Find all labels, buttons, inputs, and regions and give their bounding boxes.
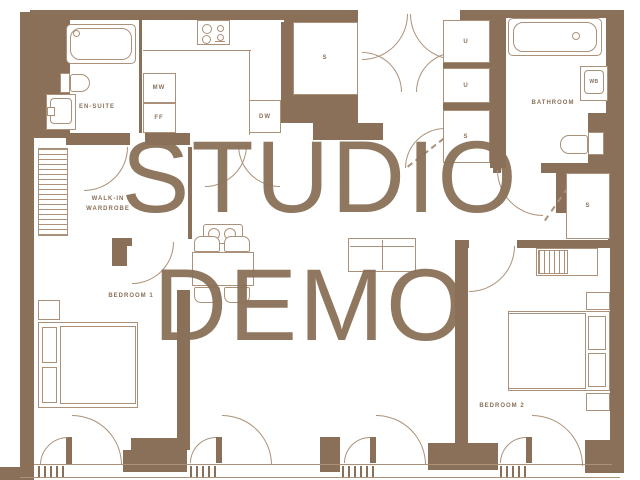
door-arc — [72, 415, 122, 465]
fixture-label-wash-basin: WB — [589, 79, 598, 85]
door-arc — [344, 437, 370, 463]
wall-segment — [606, 10, 624, 168]
wall-segment — [139, 20, 142, 133]
balcony-railing — [38, 466, 68, 477]
pillow — [42, 367, 57, 403]
mattress — [60, 326, 136, 404]
toilet — [560, 135, 588, 154]
door-arc — [500, 437, 526, 463]
balcony-railing — [342, 466, 374, 477]
pillow — [588, 316, 606, 350]
entry-door-arc — [362, 52, 402, 92]
kitchen-counter-edge — [143, 50, 251, 51]
bathtub-inner — [513, 22, 597, 52]
hob-controls — [215, 41, 225, 42]
wall-segment — [66, 10, 284, 20]
room-label-ensuite: EN-SUITE — [79, 104, 115, 110]
wall-segment — [284, 10, 358, 22]
door-arc — [190, 437, 216, 463]
door-arc — [376, 415, 426, 465]
hob-burner — [202, 35, 211, 44]
bedside-table — [38, 300, 60, 320]
floor-plan: EN-SUITE WALK-IN WARDROBE BEDROOM 1 BATH… — [0, 0, 640, 480]
mattress — [508, 313, 586, 389]
hob-burner — [202, 24, 212, 34]
door-arc — [222, 415, 272, 465]
room-label-bathroom: BATHROOM — [532, 100, 575, 106]
room-label-walk-in-1: WALK-IN — [92, 196, 125, 202]
pillow — [588, 353, 606, 387]
watermark-line-2: DEMO — [153, 254, 467, 356]
door-arc — [469, 246, 515, 292]
door-arc — [40, 437, 68, 465]
door-arc — [532, 415, 583, 466]
wall-segment — [443, 103, 490, 110]
wall-segment — [455, 240, 469, 248]
watermark-line-1: STUDIO — [121, 126, 518, 228]
washbasin-tap — [47, 107, 55, 116]
bathtub-drain — [572, 32, 580, 40]
wall-segment — [505, 10, 608, 18]
wall-segment — [428, 443, 498, 470]
hob-burner — [217, 25, 224, 32]
wardrobe-shelves — [38, 148, 68, 236]
store-label-entry: S — [322, 55, 327, 61]
wall-segment — [284, 95, 358, 123]
wall-segment — [320, 437, 340, 472]
balcony-railing — [190, 466, 220, 477]
utility-label-1: U — [463, 39, 468, 45]
balcony-edge-line — [20, 477, 620, 478]
balcony-railing — [500, 466, 530, 477]
store-label-bedroom2: S — [585, 203, 590, 209]
wall-segment — [610, 425, 624, 443]
wall-segment — [123, 450, 187, 472]
wall-segment — [131, 438, 177, 450]
wall-segment — [0, 467, 34, 480]
wardrobe-rail — [538, 250, 568, 274]
bedside-table — [586, 292, 610, 310]
wall-segment — [608, 168, 624, 246]
toilet-cistern — [60, 73, 70, 93]
wall-segment — [585, 440, 624, 473]
room-label-bedroom2: BEDROOM 2 — [479, 403, 524, 409]
wall-segment — [517, 240, 614, 248]
hob-burner — [217, 34, 224, 41]
sofa-back-line — [350, 246, 414, 247]
bathtub-drain — [73, 30, 80, 37]
room-label-bedroom1: BEDROOM 1 — [108, 293, 153, 299]
utility-label-2: U — [463, 83, 468, 89]
appliance-label-microwave: MW — [153, 85, 166, 91]
wall-segment — [112, 238, 127, 266]
wall-segment — [610, 243, 624, 435]
bedside-table — [586, 393, 610, 411]
toilet — [70, 74, 90, 92]
toilet-cistern — [588, 132, 604, 155]
pillow — [42, 327, 57, 363]
